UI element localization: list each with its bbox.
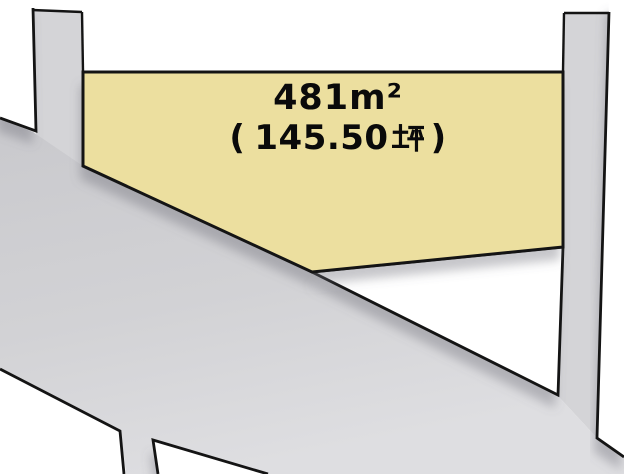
boundary-line-left-upper [82,12,83,71]
boundary-line-right-upper [563,13,564,71]
plot-map-svg [0,0,624,474]
neighbor-lot-top-left [0,0,36,131]
land-plot-diagram: 481m² (145.50 ) [0,0,624,474]
